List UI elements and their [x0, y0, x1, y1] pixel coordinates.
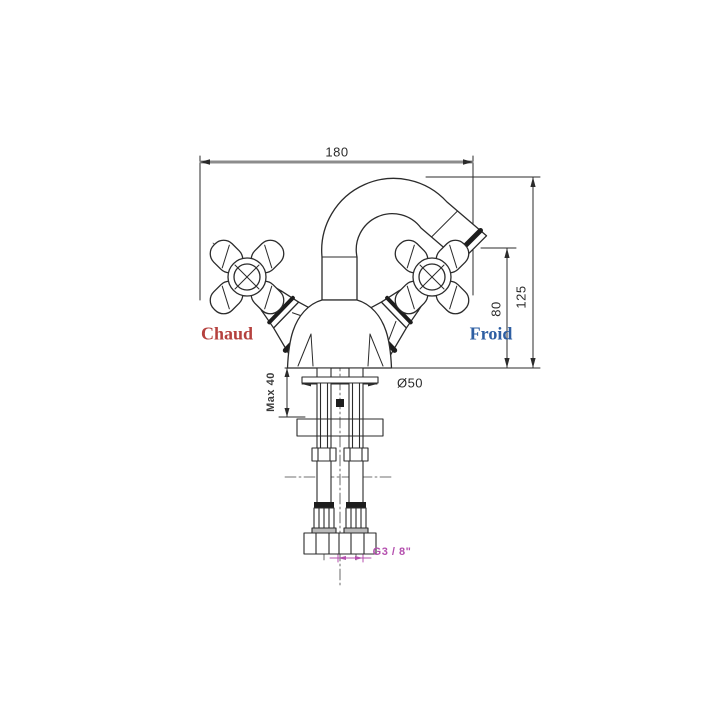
cold-water-label: Froid	[470, 324, 513, 345]
dimension-spout-height: 80	[489, 301, 504, 316]
spout	[322, 178, 487, 300]
dimension-max-deck-thickness: Max 40	[265, 372, 277, 412]
dimension-overall-width: 180	[325, 145, 348, 160]
dimension-overall-height: 125	[514, 285, 529, 308]
drawing-canvas: 180 125 80 Max 40 Ø50 G3 / 8" Chaud Froi…	[0, 0, 720, 720]
hot-water-label: Chaud	[201, 324, 253, 345]
faucet-line-art	[0, 0, 720, 720]
dimension-supply-thread: G3 / 8"	[373, 546, 412, 558]
dimension-base-diameter: Ø50	[397, 376, 423, 391]
